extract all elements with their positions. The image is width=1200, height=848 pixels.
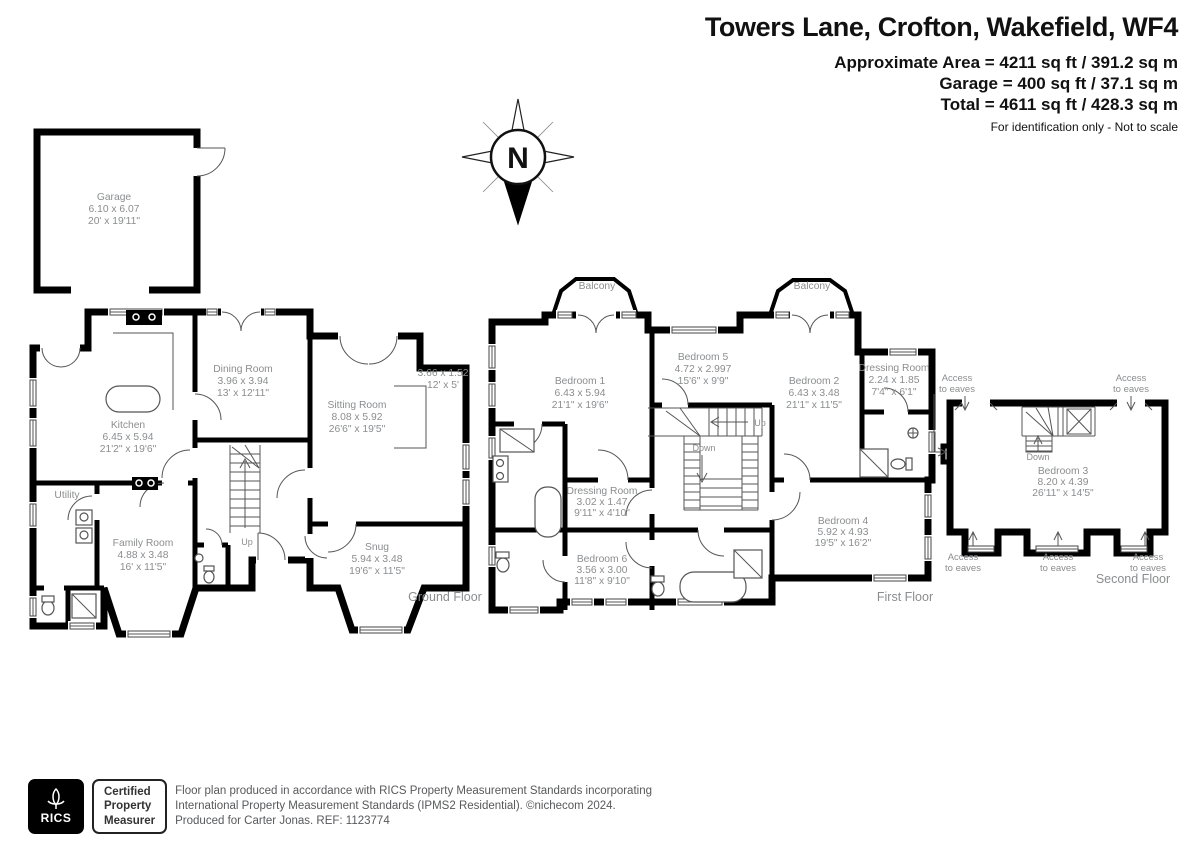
room-label-dining-room: Dining Room bbox=[213, 364, 273, 375]
room-dim-dressing2-imperial: 7'4" x 6'1" bbox=[871, 387, 916, 398]
eaves-label-bc-1: Access bbox=[1043, 552, 1074, 563]
eaves-label-bl-2: to eaves bbox=[945, 563, 981, 574]
eaves-label-bl-1: Access bbox=[948, 552, 979, 563]
room-label-kitchen: Kitchen bbox=[111, 420, 146, 431]
room-label-sitting-room: Sitting Room bbox=[328, 400, 387, 411]
room-dim-bedroom5-imperial: 15'6" x 9'9" bbox=[678, 376, 729, 387]
stairs-up-label-gf: Up bbox=[241, 537, 253, 547]
cert-line-2: Property bbox=[104, 799, 155, 813]
room-dim-bedroom4-imperial: 19'5" x 16'2" bbox=[815, 538, 872, 549]
eaves-label-tr-2: to eaves bbox=[1113, 384, 1149, 395]
eaves-label-tl-1: Access bbox=[942, 373, 973, 384]
eaves-label-tl-2: to eaves bbox=[939, 384, 975, 395]
room-label-bedroom4: Bedroom 4 bbox=[818, 516, 869, 527]
room-dim-kitchen-metric: 6.45 x 5.94 bbox=[103, 432, 154, 443]
rics-label: RICS bbox=[41, 811, 72, 825]
approximate-area-text: Approximate Area = 4211 sq ft / 391.2 sq… bbox=[705, 52, 1178, 73]
footer-disclaimer-text: Floor plan produced in accordance with R… bbox=[175, 784, 652, 829]
room-label-bedroom5: Bedroom 5 bbox=[678, 352, 729, 363]
room-dim-sitting-imperial: 26'6" x 19'5" bbox=[329, 424, 386, 435]
room-dim-sitting-bay-imperial: 12' x 5' bbox=[427, 380, 459, 391]
room-label-bedroom6: Bedroom 6 bbox=[577, 554, 628, 565]
room-dim-dressing2-metric: 2.24 x 1.85 bbox=[869, 375, 920, 386]
room-dim-family-metric: 4.88 x 3.48 bbox=[118, 550, 169, 561]
floor-label-ground: Ground Floor bbox=[408, 590, 482, 604]
room-dim-family-imperial: 16' x 11'5" bbox=[120, 562, 167, 573]
room-label-utility: Utility bbox=[54, 490, 80, 501]
north-compass-icon: N bbox=[462, 99, 574, 224]
compass-north-label: N bbox=[507, 142, 529, 175]
floorplan-page: N Garage 6.10 x 6.07 20' x 19'11" Kitche… bbox=[0, 0, 1200, 848]
rics-emblem-icon bbox=[43, 788, 69, 810]
room-dim-dressing1-imperial: 9'11" x 4'10" bbox=[574, 508, 630, 519]
room-dim-bedroom1-metric: 6.43 x 5.94 bbox=[555, 388, 606, 399]
room-dim-kitchen-imperial: 21'2" x 19'6" bbox=[100, 444, 157, 455]
room-label-snug: Snug bbox=[365, 542, 389, 553]
balcony-label-2: Balcony bbox=[794, 281, 831, 292]
eaves-label-bc-2: to eaves bbox=[1040, 563, 1076, 574]
room-dim-garage-imperial: 20' x 19'11" bbox=[88, 216, 140, 227]
footer-line-1: Floor plan produced in accordance with R… bbox=[175, 784, 652, 799]
room-dim-bedroom2-metric: 6.43 x 3.48 bbox=[789, 388, 840, 399]
disclaimer-text: For identification only - Not to scale bbox=[705, 120, 1178, 134]
room-label-bedroom1: Bedroom 1 bbox=[555, 376, 606, 387]
room-dim-bedroom6-metric: 3.56 x 3.00 bbox=[577, 565, 628, 576]
room-dim-bedroom2-imperial: 21'1" x 11'5" bbox=[786, 400, 842, 411]
footer-line-2: International Property Measurement Stand… bbox=[175, 799, 652, 814]
room-dim-garage-metric: 6.10 x 6.07 bbox=[89, 204, 140, 215]
room-dim-snug-metric: 5.94 x 3.48 bbox=[352, 554, 403, 565]
room-label-bedroom2: Bedroom 2 bbox=[789, 376, 840, 387]
room-label-dressing-room-2: Dressing Room bbox=[859, 363, 930, 374]
balcony-label-1: Balcony bbox=[579, 281, 616, 292]
room-dim-sitting-bay-metric: 3.66 x 1.52 bbox=[418, 368, 469, 379]
page-title: Towers Lane, Crofton, Wakefield, WF4 bbox=[705, 12, 1178, 43]
room-dim-bedroom5-metric: 4.72 x 2.997 bbox=[675, 364, 732, 375]
room-dim-sitting-metric: 8.08 x 5.92 bbox=[332, 412, 383, 423]
room-dim-dining-metric: 3.96 x 3.94 bbox=[218, 376, 269, 387]
room-dim-dressing1-metric: 3.02 x 1.47 bbox=[577, 497, 628, 508]
stairs-up-label-ff: Up bbox=[754, 418, 766, 428]
header: Towers Lane, Crofton, Wakefield, WF4 App… bbox=[705, 12, 1178, 134]
stairs-down-label-ff: Down bbox=[692, 443, 715, 453]
cert-line-3: Measurer bbox=[104, 814, 155, 828]
room-label-dressing-room-1: Dressing Room bbox=[567, 486, 638, 497]
rics-logo: RICS bbox=[28, 779, 84, 834]
room-dim-bedroom6-imperial: 11'8" x 9'10" bbox=[574, 576, 630, 587]
garage-area-text: Garage = 400 sq ft / 37.1 sq m bbox=[705, 73, 1178, 94]
stairs-down-label-sf: Down bbox=[1026, 452, 1049, 462]
room-label-family-room: Family Room bbox=[113, 538, 174, 549]
room-dim-bedroom1-imperial: 21'1" x 19'6" bbox=[552, 400, 609, 411]
room-dim-bedroom3-metric: 8.20 x 4.39 bbox=[1038, 477, 1089, 488]
room-dim-bedroom4-metric: 5.92 x 4.93 bbox=[818, 527, 869, 538]
floor-label-second: Second Floor bbox=[1096, 572, 1170, 586]
room-dim-bedroom3-imperial: 26'11" x 14'5" bbox=[1032, 488, 1094, 499]
eaves-label-tr-1: Access bbox=[1116, 373, 1147, 384]
room-dim-dining-imperial: 13' x 12'11" bbox=[217, 388, 269, 399]
ground-floor-plan bbox=[27, 306, 471, 640]
room-label-bedroom3: Bedroom 3 bbox=[1038, 466, 1089, 477]
cert-line-1: Certified bbox=[104, 785, 155, 799]
garage-labels: Garage 6.10 x 6.07 20' x 19'11" bbox=[88, 192, 140, 227]
room-label-garage: Garage bbox=[97, 192, 132, 203]
eaves-label-br-1: Access bbox=[1133, 552, 1164, 563]
certified-property-measurer-badge: Certified Property Measurer bbox=[92, 779, 167, 834]
total-area-text: Total = 4611 sq ft / 428.3 sq m bbox=[705, 94, 1178, 115]
footer: RICS Certified Property Measurer Floor p… bbox=[28, 779, 652, 834]
footer-line-3: Produced for Carter Jonas. REF: 1123774 bbox=[175, 814, 652, 829]
floor-label-first: First Floor bbox=[877, 590, 933, 604]
room-dim-snug-imperial: 19'6" x 11'5" bbox=[349, 566, 405, 577]
